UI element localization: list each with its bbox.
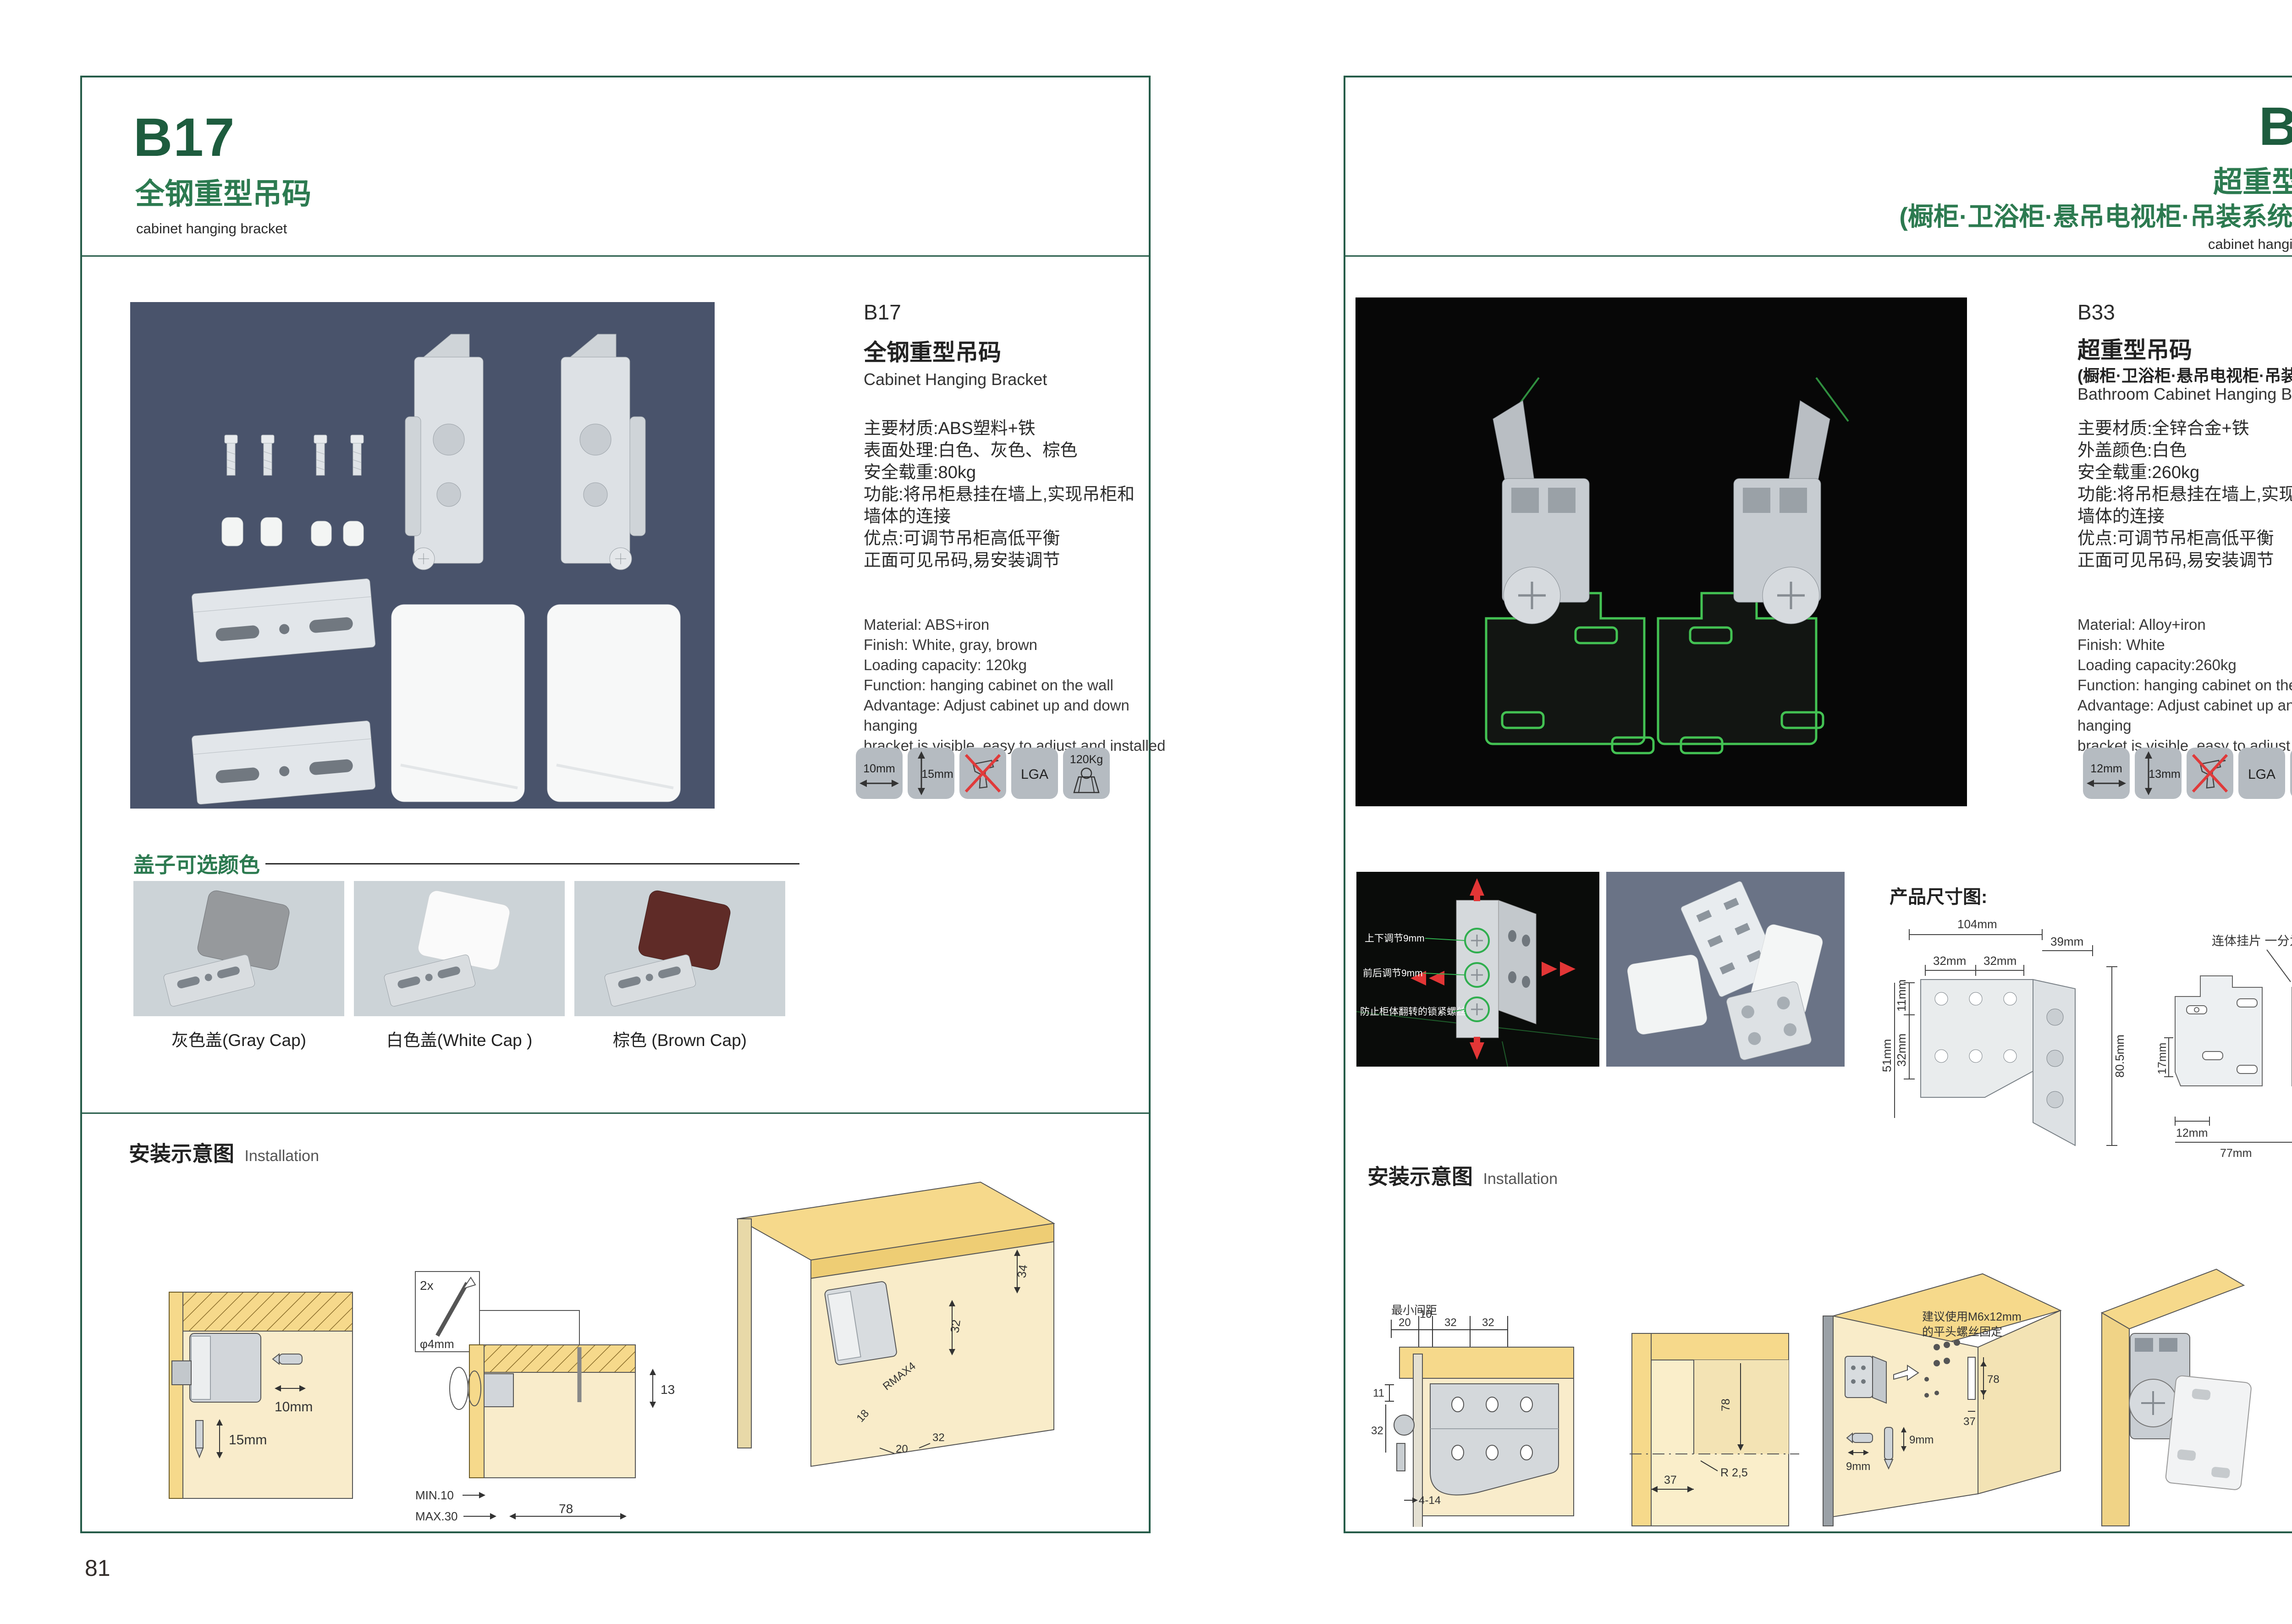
white-cover-cap-1 xyxy=(391,605,524,802)
feature-icons-row: 12mm 13mm LGA xyxy=(2083,748,2292,799)
parts-photo xyxy=(1606,872,1845,1067)
installation-title-cn: 安装示意图 xyxy=(129,1142,234,1166)
dim-51mm: 51mm xyxy=(1880,1039,1894,1072)
dim-9mm-b: 9mm xyxy=(1909,1434,1934,1446)
plate-note: 连体挂片 一分为二 xyxy=(2212,934,2292,948)
brown-cap-graphic xyxy=(574,881,785,1016)
diagram-mounted-side xyxy=(2102,1269,2252,1526)
small-bracket-glyph xyxy=(1845,1356,1886,1403)
plate-dimension-diagram: 连体挂片 一分为二 55mm 39mm 55mm 17mm 12mm 63mm … xyxy=(2148,923,2292,1164)
diagram-screw-section: 2x φ4mm 13 MIN.10 MAX.30 78 xyxy=(415,1272,675,1523)
dim-32b: 32 xyxy=(932,1431,945,1444)
adjustment-labels: 上下调节9mm 前后调节9mm 防止柜体翻转的锁紧螺丝 xyxy=(1360,933,1466,1017)
metal-bracket-right xyxy=(1734,401,1830,624)
detail-name-cn-sub: (橱柜·卫浴柜·悬吊电视柜·吊装系统 专用) xyxy=(2077,363,2292,386)
metal-bracket-part xyxy=(1725,981,1812,1061)
dim-32mm-a: 32mm xyxy=(1933,954,1966,968)
label-frontback: 前后调节9mm xyxy=(1363,968,1423,979)
installation-header: 安装示意图 Installation xyxy=(129,1137,319,1167)
screw-qty: 2x xyxy=(420,1278,434,1293)
spec-line-en: Loading capacity: 120kg xyxy=(864,655,1166,675)
page-number-left: 81 xyxy=(85,1555,110,1581)
gray-cap-graphic xyxy=(133,881,344,1016)
spec-line-en: Advantage: Adjust cabinet up and down ha… xyxy=(2077,695,2292,736)
installation-header: 安装示意图 Installation xyxy=(1367,1160,1558,1190)
dim-4-14: 4-14 xyxy=(1419,1494,1441,1507)
dim-37b: 37 xyxy=(1963,1415,1976,1428)
spec-line: 墙体的连接 xyxy=(864,506,1157,528)
bracket-side-assembly xyxy=(2129,1333,2252,1490)
header-divider xyxy=(1345,255,2292,257)
depth-label: 13mm xyxy=(2141,768,2188,781)
spec-line: 主要材质:全锌合金+铁 xyxy=(2077,418,2292,440)
dim-15mm: 15mm xyxy=(229,1432,267,1448)
no-drill-icon xyxy=(959,748,1006,799)
load-capacity-icon: 260Kg xyxy=(2290,748,2292,799)
spec-line-en: Loading capacity:260kg xyxy=(2077,655,2292,675)
dim-77mm: 77mm xyxy=(2220,1147,2252,1160)
header-divider xyxy=(82,255,1149,257)
installation-diagrams-b17: 10mm 15mm 2x φ4mm 13 xyxy=(82,1173,1145,1526)
caption-gray-cap: 灰色盖(Gray Cap) xyxy=(133,1026,344,1051)
installation-divider xyxy=(82,1112,1149,1114)
specs-en-block: Material: Alloy+iron Finish: White Loadi… xyxy=(2077,615,2292,756)
dowel-glyph xyxy=(273,1354,302,1364)
diagram-cabinet-3d-right: 建议使用M6x12mm 的平头螺丝固定 78 37 9mm 9mm xyxy=(1823,1274,2061,1526)
spec-line-en: Advantage: Adjust cabinet up and down ha… xyxy=(864,695,1166,736)
dim-9mm-a: 9mm xyxy=(1846,1460,1870,1473)
spec-line-en: Material: Alloy+iron xyxy=(2077,615,2292,635)
spec-line: 功能:将吊柜悬挂在墙上,实现吊柜和 xyxy=(864,484,1157,506)
diagram-cabinet-3d: 34 32 RMAX4 18 20 32 xyxy=(738,1182,1054,1466)
spec-line-en: Material: ABS+iron xyxy=(864,615,1166,635)
dim-34: 34 xyxy=(1014,1264,1030,1279)
detail-name-cn: 超重型吊码 xyxy=(2077,332,2192,365)
width-label: 12mm xyxy=(2083,762,2130,776)
detail-name-en: Cabinet Hanging Bracket xyxy=(864,370,1047,389)
color-options-title: 盖子可选颜色 xyxy=(133,848,260,879)
dim-32mm-b: 32mm xyxy=(1983,954,2017,968)
drilling-width-icon: 10mm xyxy=(856,748,903,799)
page-subtitle-en: cabinet hanging bracket xyxy=(2208,236,2292,253)
installation-diagrams-b33: 最小间距 20 10 32 32 xyxy=(1345,1196,2292,1527)
bracket-body xyxy=(1921,980,2075,1145)
dim-10: 10 xyxy=(1420,1308,1432,1321)
white-cap-graphic xyxy=(354,881,565,1016)
white-cap-part-2 xyxy=(1626,954,1708,1035)
depth-label: 15mm xyxy=(914,768,961,781)
spec-line: 表面处理:白色、灰色、棕色 xyxy=(864,440,1157,462)
color-option-photo-white xyxy=(354,881,565,1016)
page-title-cn-sub: (橱柜·卫浴柜·悬吊电视柜·吊装系统 专用) xyxy=(1899,202,2292,231)
page-title-cn: 全钢重型吊码 xyxy=(135,177,311,211)
installation-title-en: Installation xyxy=(1483,1170,1558,1188)
caption-brown-cap: 棕色 (Brown Cap) xyxy=(574,1026,785,1051)
diagram-hole-spacing: 最小间距 20 10 32 32 xyxy=(1371,1304,1574,1527)
spec-line: 优点:可调节吊柜高低平衡 xyxy=(864,528,1157,550)
spec-line: 正面可见吊码,易安装调节 xyxy=(864,550,1157,572)
white-cover-cap-2 xyxy=(547,605,680,802)
specs-cn-block: 主要材质:ABS塑料+铁 表面处理:白色、灰色、棕色 安全载重:80kg 功能:… xyxy=(864,418,1157,572)
no-drill-icon xyxy=(2187,748,2233,799)
spec-line-en: Finish: White, gray, brown xyxy=(864,635,1166,655)
dim-13: 13 xyxy=(661,1382,675,1397)
lga-cert-icon: LGA xyxy=(1011,748,1058,799)
dim-min10: MIN.10 xyxy=(415,1488,454,1502)
dim-32b: 32 xyxy=(1482,1316,1494,1329)
diagram-wall-section: 10mm 15mm xyxy=(169,1292,353,1498)
dim-78b: 78 xyxy=(1987,1373,2000,1386)
caption-white-cap: 白色盖(White Cap ) xyxy=(354,1026,565,1051)
metal-bracket-left xyxy=(1493,401,1589,624)
note-line1: 建议使用M6x12mm xyxy=(1922,1310,2022,1323)
spec-line: 主要材质:ABS塑料+铁 xyxy=(864,418,1157,440)
wall-plate-1 xyxy=(192,578,376,662)
bracket-dimension-diagram: 104mm 39mm 32mm 32mm 11mm 32mm 51mm 80.5… xyxy=(1877,903,2138,1168)
dim-32c: 32 xyxy=(1371,1425,1383,1437)
spec-line: 安全载重:80kg xyxy=(864,462,1157,484)
dim-39mm: 39mm xyxy=(2050,935,2083,948)
spec-line-en: Finish: White xyxy=(2077,635,2292,655)
spec-line: 安全载重:260kg xyxy=(2077,462,2292,484)
no-drill-glyph xyxy=(959,748,1006,799)
screw-vertical-glyph xyxy=(196,1420,203,1457)
spec-line-en: Function: hanging cabinet on the wall xyxy=(2077,675,2292,695)
dim-32a: 32 xyxy=(1444,1316,1457,1329)
dim-78: 78 xyxy=(1719,1398,1732,1411)
drilling-depth-icon: 15mm xyxy=(908,748,954,799)
detail-name-en: Bathroom Cabinet Hanging Bracket xyxy=(2077,385,2292,404)
page-subtitle-en: cabinet hanging bracket xyxy=(136,220,287,237)
plate-halves xyxy=(2175,976,2292,1086)
color-option-photo-brown xyxy=(574,881,785,1016)
dim-20: 20 xyxy=(896,1443,908,1455)
product-photo-b33-graphic xyxy=(1355,297,1967,806)
spec-line: 墙体的连接 xyxy=(2077,506,2292,528)
plastic-anchors-set xyxy=(222,517,364,546)
detail-code: B17 xyxy=(864,300,901,325)
no-drill-glyph xyxy=(2187,748,2233,799)
label-lock: 防止柜体翻转的锁紧螺丝 xyxy=(1360,1007,1466,1017)
page-right-frame: B33 超重型吊码 (橱柜·卫浴柜·悬吊电视柜·吊装系统 专用) cabinet… xyxy=(1344,76,2292,1533)
hanging-bracket-2 xyxy=(561,334,645,570)
bracket-on-face xyxy=(824,1281,897,1365)
spec-line-en: Function: hanging cabinet on the wall xyxy=(864,675,1166,695)
page-title-code: B17 xyxy=(133,110,235,165)
drilling-depth-icon: 13mm xyxy=(2135,748,2182,799)
dim-12mm: 12mm xyxy=(2176,1127,2208,1140)
page-left-frame: B17 全钢重型吊码 cabinet hanging bracket xyxy=(80,76,1151,1533)
lga-label: LGA xyxy=(1011,767,1058,782)
load-label: 120Kg xyxy=(1063,753,1110,766)
adjustment-feature-photo: 上下调节9mm 前后调节9mm 防止柜体翻转的锁紧螺丝 xyxy=(1356,872,1599,1067)
parts-graphic xyxy=(1606,872,1845,1067)
dim-11mm: 11mm xyxy=(1895,980,1908,1012)
installation-title-en: Installation xyxy=(244,1147,319,1165)
color-options-rule xyxy=(265,863,799,864)
detail-code: B33 xyxy=(2077,300,2115,325)
color-option-photo-gray xyxy=(133,881,344,1016)
dim-20: 20 xyxy=(1399,1316,1411,1329)
dim-32mm-v: 32mm xyxy=(1895,1034,1908,1067)
page-title-cn: 超重型吊码 xyxy=(2213,165,2292,199)
dim-17mm: 17mm xyxy=(2156,1043,2169,1074)
spec-line: 外盖颜色:白色 xyxy=(2077,440,2292,462)
load-label: 260Kg xyxy=(2290,753,2292,766)
screw-dia: φ4mm xyxy=(420,1337,454,1351)
label-updown: 上下调节9mm xyxy=(1365,933,1425,944)
hanging-bracket-1 xyxy=(405,334,483,570)
width-label: 10mm xyxy=(856,762,903,776)
lga-label: LGA xyxy=(2238,767,2285,782)
feature-icons-row: 10mm 15mm LGA xyxy=(856,748,1115,799)
dim-r25: R 2,5 xyxy=(1720,1466,1748,1479)
spec-line: 优点:可调节吊柜高低平衡 xyxy=(2077,528,2292,550)
product-photo-b17-graphic xyxy=(130,302,715,809)
spec-line: 功能:将吊柜悬挂在墙上,实现吊柜和 xyxy=(2077,484,2292,506)
load-capacity-icon: 120Kg xyxy=(1063,748,1110,799)
dim-32a: 32 xyxy=(948,1319,963,1334)
dim-78: 78 xyxy=(559,1502,573,1516)
catalog-spread: { "theme": { "accent_dark_green": "#1d5c… xyxy=(0,0,2292,1624)
dim-max30: MAX.30 xyxy=(415,1509,458,1523)
dim-37: 37 xyxy=(1664,1474,1677,1486)
diagram-groove: 78 R 2,5 37 xyxy=(1630,1333,1799,1526)
dim-80-5mm: 80.5mm xyxy=(2113,1035,2127,1078)
product-photo-b17 xyxy=(130,302,715,809)
drilling-width-icon: 12mm xyxy=(2083,748,2130,799)
specs-en-block: Material: ABS+iron Finish: White, gray, … xyxy=(864,615,1166,756)
dim-10mm: 10mm xyxy=(275,1399,313,1415)
lga-cert-icon: LGA xyxy=(2238,748,2285,799)
page-title-code: B33 xyxy=(2259,99,2292,154)
dim-11: 11 xyxy=(1373,1387,1384,1399)
installation-title-cn: 安装示意图 xyxy=(1367,1165,1473,1189)
dim-104mm: 104mm xyxy=(1957,917,1997,931)
adjustment-graphic: 上下调节9mm 前后调节9mm 防止柜体翻转的锁紧螺丝 xyxy=(1356,872,1599,1067)
spec-line: 正面可见吊码,易安装调节 xyxy=(2077,550,2292,572)
product-photo-b33 xyxy=(1355,297,1967,806)
detail-name-cn: 全钢重型吊码 xyxy=(864,334,1001,367)
wall-plate-2 xyxy=(192,721,376,804)
note-line2: 的平头螺丝固定 xyxy=(1922,1326,2002,1338)
screws-set xyxy=(225,435,364,475)
specs-cn-block: 主要材质:全锌合金+铁 外盖颜色:白色 安全载重:260kg 功能:将吊柜悬挂在… xyxy=(2077,418,2292,572)
